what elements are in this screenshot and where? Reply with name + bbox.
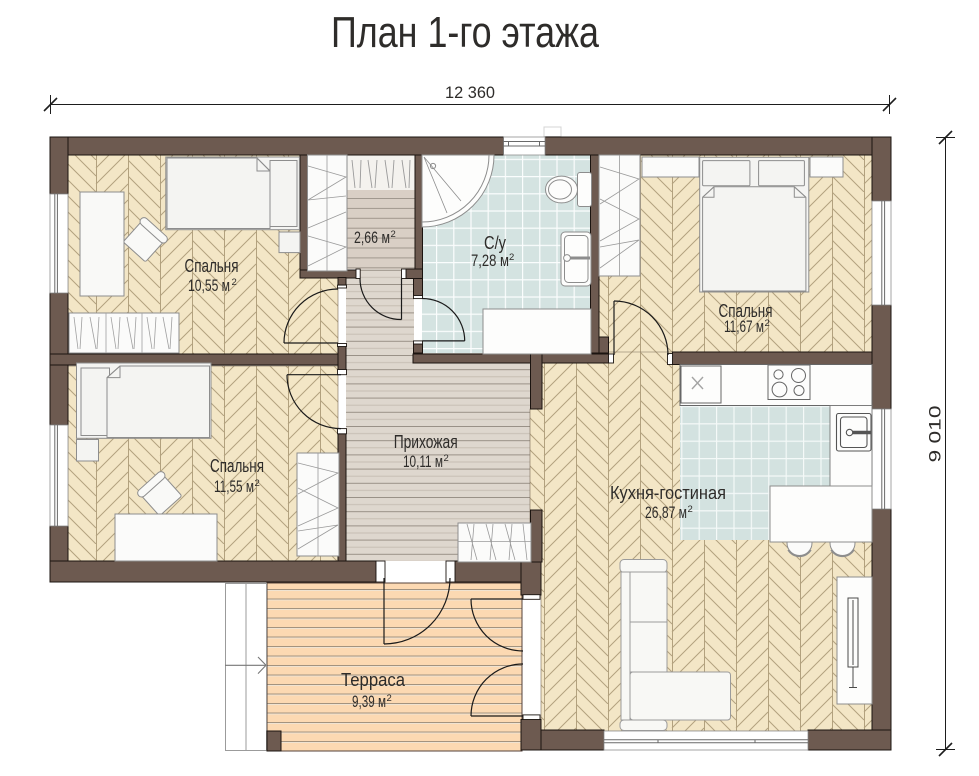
svg-text:11,55 м: 11,55 м [214, 477, 254, 496]
svg-text:План 1-го этажа: План 1-го этажа [331, 8, 599, 57]
svg-text:2: 2 [444, 453, 449, 464]
svg-text:Прихожая: Прихожая [394, 432, 458, 452]
svg-text:12 360: 12 360 [445, 83, 495, 102]
svg-text:2: 2 [387, 693, 392, 704]
svg-text:9 010: 9 010 [926, 406, 945, 463]
svg-text:2: 2 [688, 504, 693, 515]
svg-text:2: 2 [509, 252, 514, 263]
svg-text:26,87 м: 26,87 м [645, 503, 687, 522]
svg-text:2,66 м: 2,66 м [354, 228, 390, 247]
svg-text:2: 2 [765, 318, 770, 329]
svg-text:2: 2 [232, 277, 237, 288]
svg-text:2: 2 [255, 478, 260, 489]
svg-text:7,28 м: 7,28 м [471, 251, 509, 270]
svg-text:Кухня-гостиная: Кухня-гостиная [610, 483, 726, 503]
svg-text:10,55 м: 10,55 м [188, 276, 230, 295]
svg-text:10,11 м: 10,11 м [403, 452, 443, 471]
svg-text:Терраса: Терраса [341, 670, 406, 690]
svg-text:С/у: С/у [484, 233, 506, 253]
svg-text:2: 2 [391, 229, 396, 240]
svg-text:11,67 м: 11,67 м [724, 317, 764, 336]
svg-text:9,39 м: 9,39 м [352, 692, 386, 711]
svg-text:Спальня: Спальня [185, 256, 239, 276]
svg-text:Спальня: Спальня [210, 456, 264, 476]
